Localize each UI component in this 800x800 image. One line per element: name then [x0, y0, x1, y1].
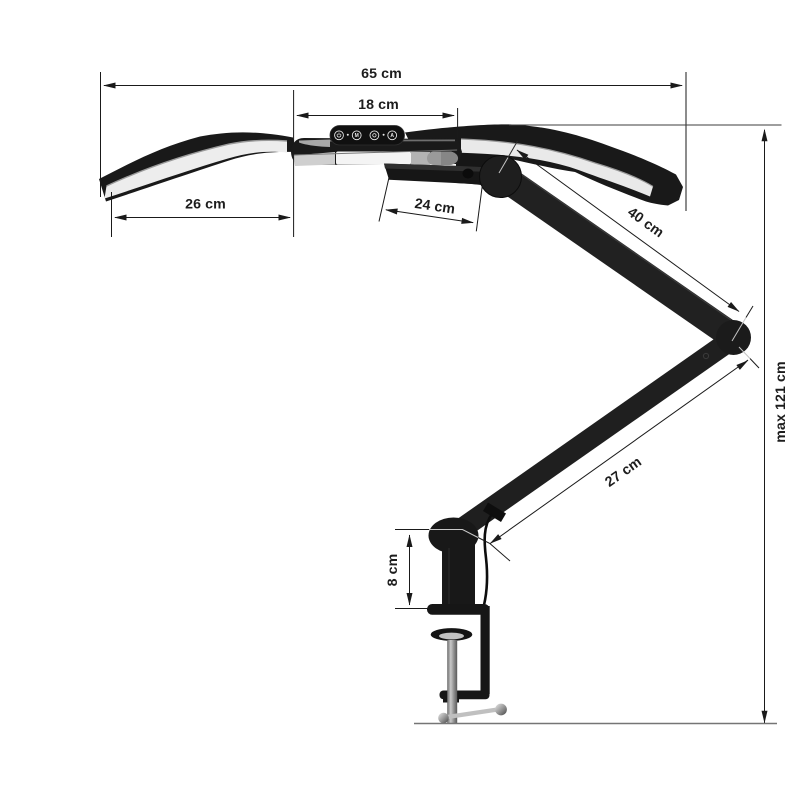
- svg-text:A: A: [390, 133, 394, 139]
- svg-text:max 121 cm: max 121 cm: [773, 361, 789, 442]
- svg-text:65 cm: 65 cm: [361, 66, 402, 82]
- svg-text:40 cm: 40 cm: [624, 204, 666, 241]
- svg-text:8 cm: 8 cm: [385, 554, 401, 587]
- svg-text:M: M: [355, 133, 359, 139]
- svg-text:18 cm: 18 cm: [358, 97, 399, 113]
- svg-text:26 cm: 26 cm: [185, 197, 226, 213]
